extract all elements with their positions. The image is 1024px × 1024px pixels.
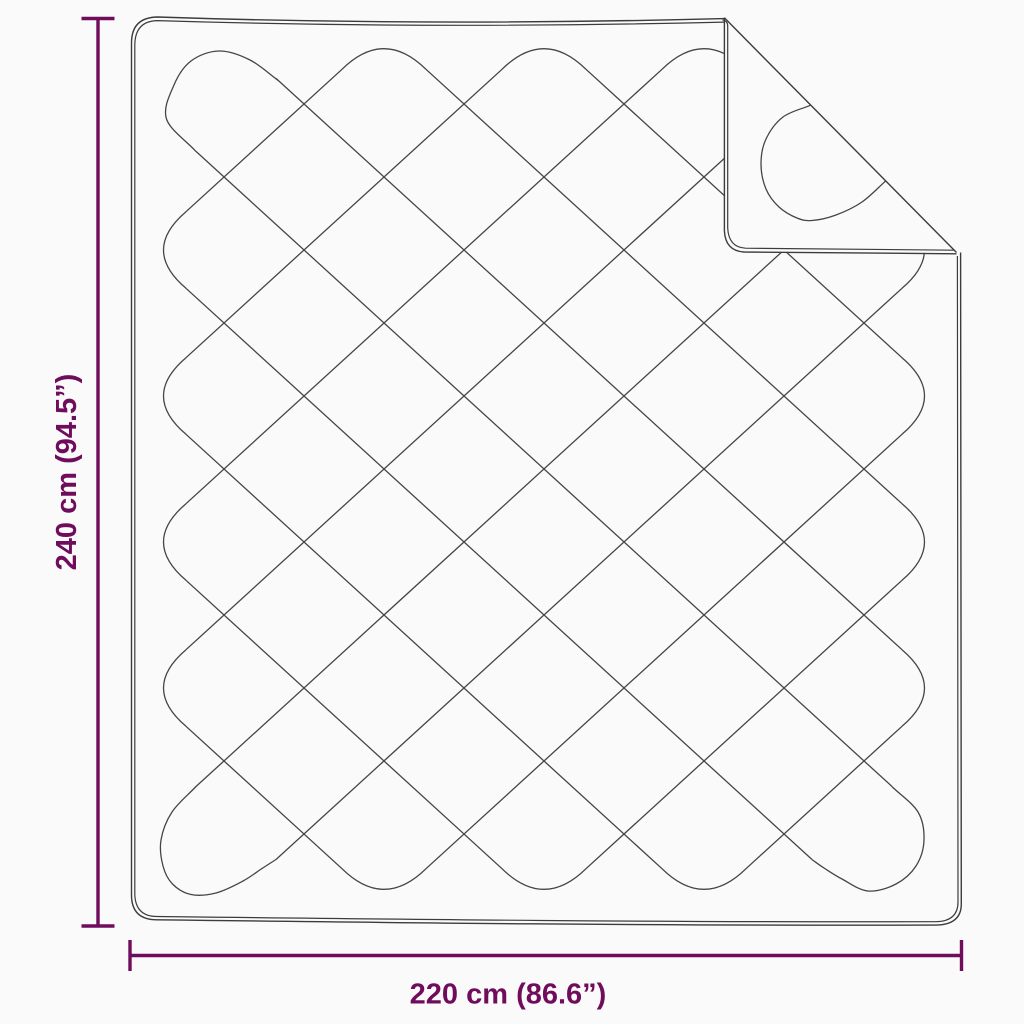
svg-text:240 cm (94.5”): 240 cm (94.5”): [51, 374, 83, 571]
svg-text:220 cm (86.6”): 220 cm (86.6”): [410, 979, 607, 1011]
